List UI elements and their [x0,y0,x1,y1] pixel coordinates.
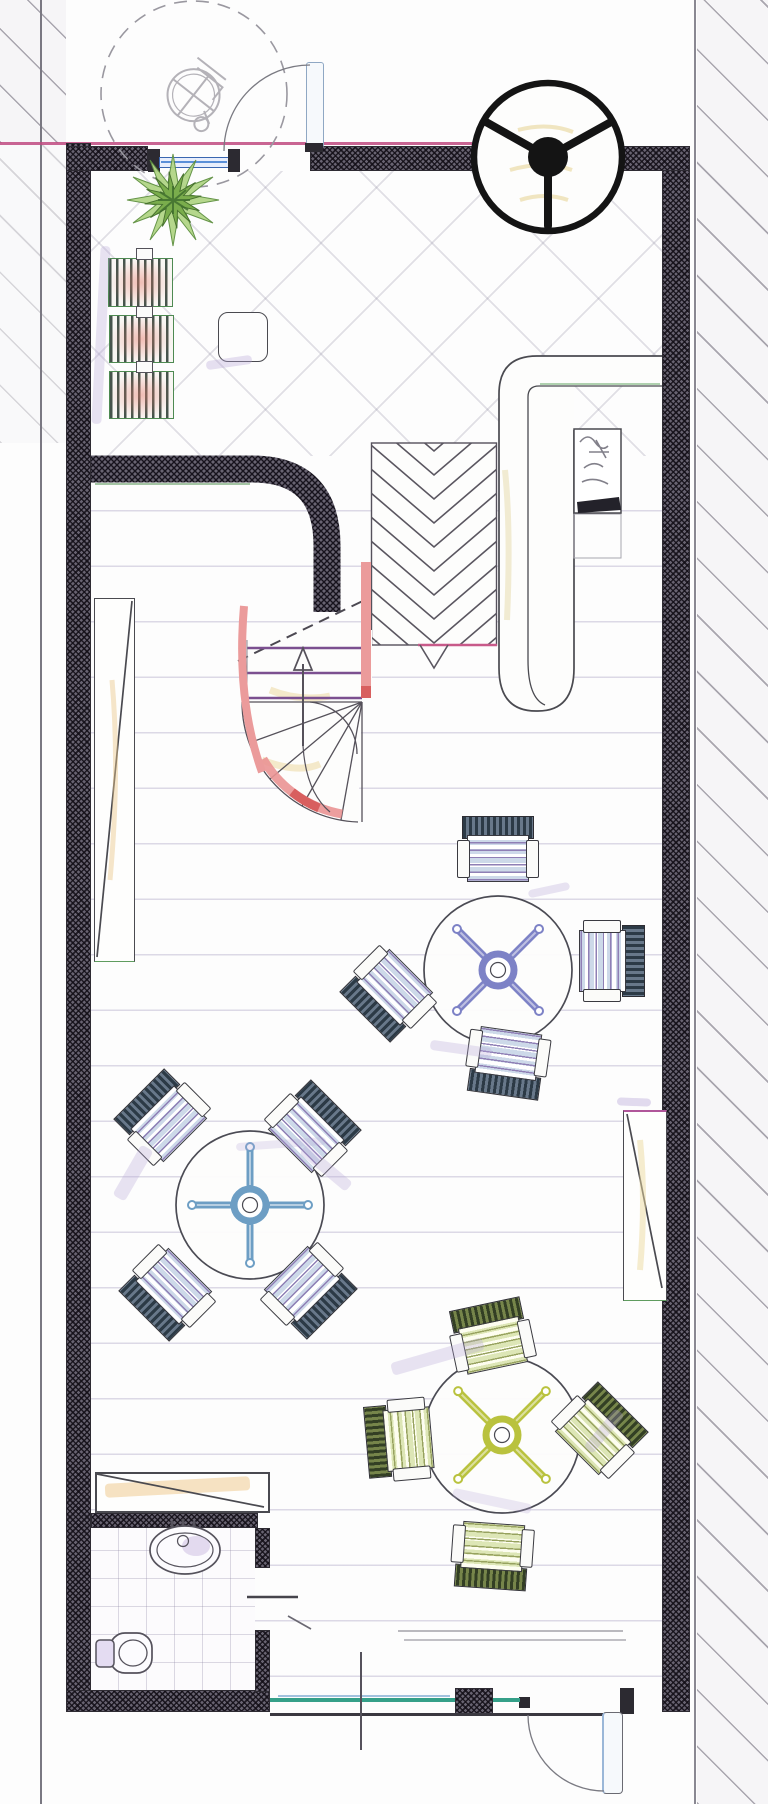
wall-shelf-left [94,598,135,962]
lounge-side-table [218,312,268,362]
section-line [360,1652,362,1750]
top-window-glass-line [161,161,227,164]
neighbour-hatch-top-left [0,0,66,143]
chair-armrest [583,920,621,933]
wc-wall-right-lower [255,1630,270,1692]
rear-door-swing-arc [528,1715,604,1791]
chair-armrest [519,1529,535,1568]
floor-plan-canvas [0,0,768,1804]
wall-left [66,143,91,1712]
bench-connector [136,361,153,373]
storefront-pier [455,1688,493,1715]
wall-right [662,147,690,1712]
wall-top-segment-c [622,146,690,171]
chair-armrest [526,840,539,878]
wall-bottom-heavy [66,1690,270,1712]
wc-wall-right-upper [255,1528,270,1568]
rear-door-leaf [602,1712,623,1794]
storefront-glazing-blue-tint [278,1695,450,1697]
wall-top-segment-b [310,146,474,171]
chair-seat [467,835,529,882]
wall-cabinet-above-wc [95,1472,270,1513]
chair-armrest [450,1524,466,1563]
chair-seat [382,1406,434,1472]
storefront-glazing [270,1698,455,1702]
chair-seat [579,930,626,992]
chair-seat [474,1026,542,1081]
window-jamb-right [228,149,240,172]
chair-armrest [457,840,470,878]
bench-connector [136,306,153,318]
pencil-guide-line [398,1630,623,1632]
wheelchair-icon [157,54,238,135]
storefront-sill-line [270,1713,622,1716]
rear-door-jamb [620,1688,634,1714]
lounge-bench [108,258,173,307]
chair-seat [460,1521,525,1572]
neighbour-hatch-left [0,143,66,443]
lounge-bench [109,315,174,363]
chair [579,925,645,997]
site-boundary-line-right [694,0,696,1804]
bench-connector [136,248,153,260]
wall-shelf-right [623,1110,667,1301]
entry-door-leaf [306,62,324,148]
entry-door-swing-arc [224,65,310,151]
chair [363,1401,435,1478]
chair-armrest [583,989,621,1002]
storefront-glazing-2 [493,1698,520,1702]
chair [462,816,534,882]
lounge-bench [109,371,174,419]
wall-top-segment-a [66,146,148,171]
chair [467,1025,547,1100]
wc-wall-top [91,1513,258,1528]
pencil-guide-line [404,1639,626,1641]
wc-floor-tiles [91,1528,255,1690]
neighbour-hatch-right [697,0,768,1804]
site-boundary-line-left [40,0,42,1804]
storefront-post [519,1697,530,1708]
entry-door-hinge [305,143,323,152]
entry-floor-tiles [91,171,662,456]
chair [454,1521,530,1592]
